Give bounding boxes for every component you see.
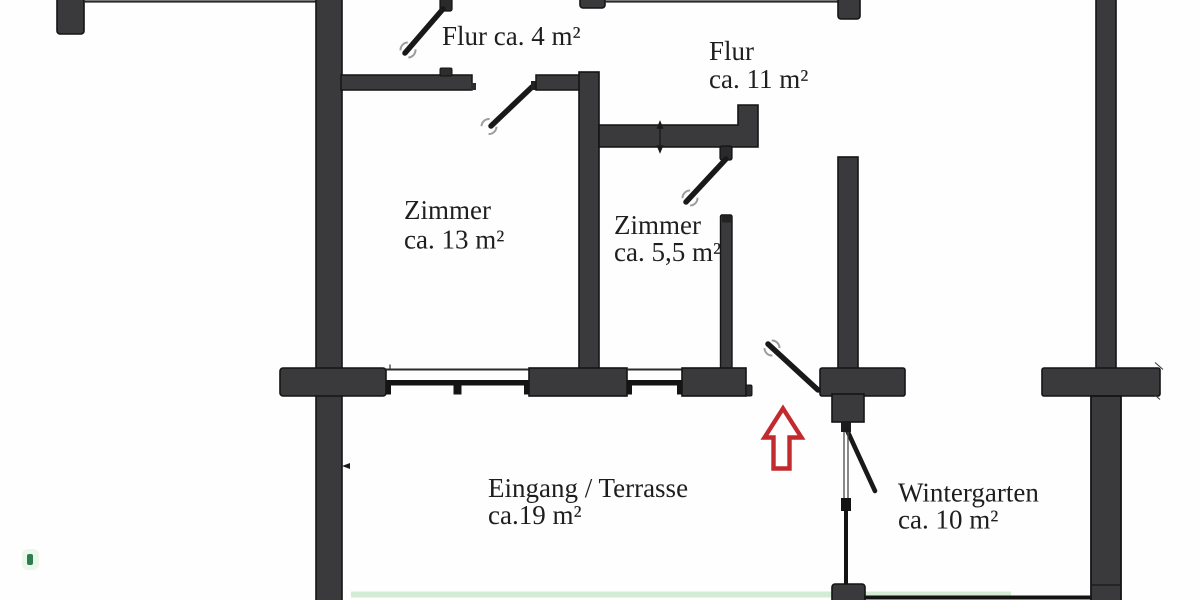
svg-text:ca.19 m²: ca.19 m² xyxy=(488,500,582,530)
svg-text:ca. 13 m²: ca. 13 m² xyxy=(404,225,504,255)
svg-text:Zimmer: Zimmer xyxy=(404,195,491,225)
svg-text:Zimmer: Zimmer xyxy=(614,210,701,240)
svg-text:ca. 11 m²: ca. 11 m² xyxy=(709,64,808,94)
svg-text:ca. 5,5 m²: ca. 5,5 m² xyxy=(614,237,721,267)
svg-text:Flur: Flur xyxy=(709,36,754,66)
svg-text:Wintergarten: Wintergarten xyxy=(898,478,1039,508)
svg-text:Eingang / Terrasse: Eingang / Terrasse xyxy=(488,473,688,503)
svg-text:Flur ca. 4 m²: Flur ca. 4 m² xyxy=(442,21,581,51)
svg-text:ca. 10 m²: ca. 10 m² xyxy=(898,505,998,535)
